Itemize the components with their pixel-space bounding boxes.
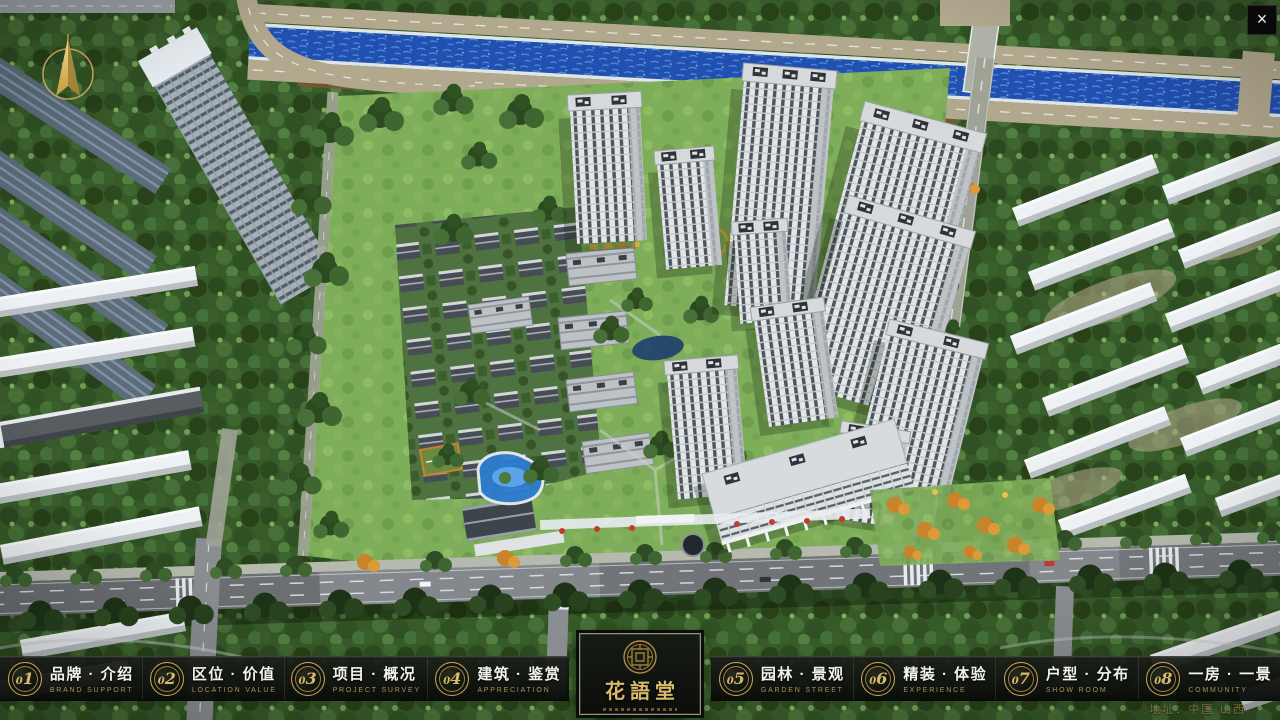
- nav-number-badge: 06: [861, 662, 895, 696]
- nav-number-badge: 08: [1146, 662, 1180, 696]
- nav-number-badge: 03: [291, 662, 325, 696]
- nav-label: 区位 · 价值: [192, 663, 276, 684]
- nav-number-badge: 01: [8, 662, 42, 696]
- nav-item-floorplan-distribution[interactable]: 07 户型 · 分布 SHOW ROOM: [995, 657, 1138, 700]
- close-button[interactable]: ×: [1247, 5, 1277, 35]
- logo-title: 花語堂: [600, 675, 680, 704]
- nav-label: 建筑 · 鉴赏: [477, 663, 561, 684]
- nav-label: 品牌 · 介绍: [50, 663, 134, 684]
- nav-caption: LOCATION VALUE: [192, 687, 277, 694]
- nav-item-brand-intro[interactable]: 01 品牌 · 介绍 BRAND SUPPORT: [0, 657, 142, 700]
- nav-caption: COMMUNITY: [1188, 687, 1247, 694]
- nav-item-location-value[interactable]: 02 区位 · 价值 LOCATION VALUE: [142, 657, 285, 700]
- nav-item-project-overview[interactable]: 03 项目 · 概况 PROJECT SURVEY: [284, 657, 427, 700]
- nav-caption: SHOW ROOM: [1046, 687, 1108, 694]
- nav-bar-left: 01 品牌 · 介绍 BRAND SUPPORT 02 区位 · 价值 LOCA…: [0, 656, 569, 701]
- address-text: 地址：中国·山西: [1149, 701, 1246, 717]
- nav-item-architecture[interactable]: 04 建筑 · 鉴赏 APPRECIATION: [427, 657, 570, 700]
- nav-number-badge: 07: [1004, 662, 1038, 696]
- project-logo[interactable]: 花語堂: [579, 633, 701, 715]
- nav-label: 项目 · 概况: [333, 663, 417, 684]
- nav-label: 精装 · 体验: [903, 663, 987, 684]
- nav-label: 户型 · 分布: [1046, 663, 1130, 684]
- nav-caption: APPRECIATION: [477, 687, 550, 694]
- logo-caption: [603, 708, 677, 711]
- nav-number-badge: 05: [719, 662, 753, 696]
- nav-caption: EXPERIENCE: [903, 687, 966, 694]
- vignette: [0, 0, 1280, 720]
- nav-caption: BRAND SUPPORT: [50, 687, 134, 694]
- nav-label: 一房 · 一景: [1188, 663, 1272, 684]
- nav-item-interior-experience[interactable]: 06 精装 · 体验 EXPERIENCE: [853, 657, 996, 700]
- masterplan-render[interactable]: [0, 0, 1280, 720]
- nav-number-badge: 04: [435, 662, 469, 696]
- nav-item-landscape[interactable]: 05 园林 · 景观 GARDEN STREET: [711, 657, 853, 700]
- nav-caption: PROJECT SURVEY: [333, 687, 421, 694]
- nav-bar-right: 05 园林 · 景观 GARDEN STREET 06 精装 · 体验 EXPE…: [711, 656, 1280, 701]
- logo-seal-icon: [623, 640, 657, 674]
- nav-label: 园林 · 景观: [761, 663, 845, 684]
- nav-item-room-view[interactable]: 08 一房 · 一景 COMMUNITY: [1138, 657, 1280, 700]
- nav-caption: GARDEN STREET: [761, 687, 844, 694]
- nav-number-badge: 02: [150, 662, 184, 696]
